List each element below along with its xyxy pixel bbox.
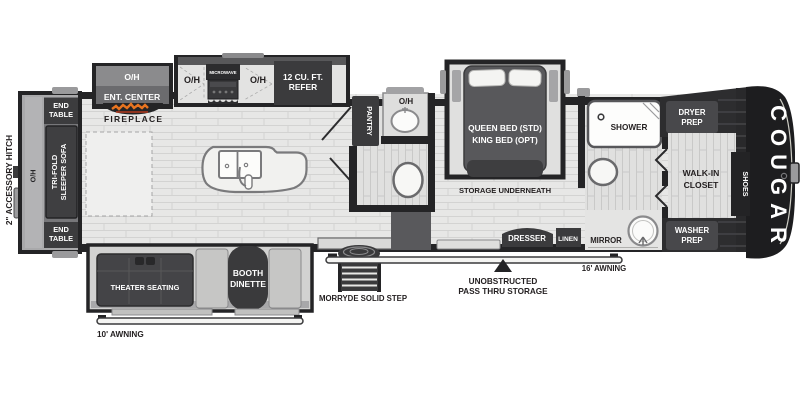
svg-text:QUEEN BED (STD): QUEEN BED (STD) <box>468 123 542 133</box>
svg-text:CLOSET: CLOSET <box>684 180 720 190</box>
svg-text:MICROWAVE: MICROWAVE <box>209 70 236 75</box>
svg-text:THEATER SEATING: THEATER SEATING <box>111 283 180 292</box>
svg-text:BOOTH: BOOTH <box>233 268 263 278</box>
svg-text:O/H: O/H <box>124 72 139 82</box>
svg-text:O/H: O/H <box>29 170 38 183</box>
svg-text:O/H: O/H <box>399 97 413 106</box>
svg-text:END: END <box>53 101 69 110</box>
svg-text:UNOBSTRUCTED: UNOBSTRUCTED <box>469 277 538 286</box>
svg-text:ENT. CENTER: ENT. CENTER <box>104 92 161 102</box>
svg-text:DRESSER: DRESSER <box>508 234 546 243</box>
svg-text:10' AWNING: 10' AWNING <box>97 330 144 339</box>
svg-text:STORAGE UNDERNEATH: STORAGE UNDERNEATH <box>459 186 551 195</box>
svg-text:O/H: O/H <box>250 75 266 85</box>
svg-text:PREP: PREP <box>681 118 702 127</box>
svg-text:16' AWNING: 16' AWNING <box>582 264 626 273</box>
svg-text:WALK-IN: WALK-IN <box>683 168 720 178</box>
svg-text:END: END <box>53 225 69 234</box>
svg-text:TRI-FOLD: TRI-FOLD <box>50 154 59 189</box>
svg-text:DINETTE: DINETTE <box>230 279 266 289</box>
svg-text:O/H: O/H <box>184 75 200 85</box>
svg-text:WASHER: WASHER <box>675 226 710 235</box>
svg-text:SHOWER: SHOWER <box>611 123 648 132</box>
svg-text:REFER: REFER <box>289 82 317 92</box>
svg-text:2" ACCESSORY HITCH: 2" ACCESSORY HITCH <box>4 135 14 225</box>
svg-text:FIREPLACE: FIREPLACE <box>104 114 162 124</box>
svg-text:SLEEPER SOFA: SLEEPER SOFA <box>59 143 68 200</box>
svg-text:LINEN: LINEN <box>558 236 578 243</box>
svg-text:TABLE: TABLE <box>49 234 73 243</box>
svg-text:MORRYDE SOLID STEP: MORRYDE SOLID STEP <box>319 294 407 303</box>
svg-text:MIRROR: MIRROR <box>590 236 622 245</box>
svg-text:DRYER: DRYER <box>678 108 705 117</box>
svg-text:KING BED (OPT): KING BED (OPT) <box>472 135 538 145</box>
svg-text:COUGAR: COUGAR <box>766 105 791 251</box>
svg-text:PREP: PREP <box>681 236 702 245</box>
svg-text:PASS THRU STORAGE: PASS THRU STORAGE <box>458 287 548 296</box>
svg-text:SHOES: SHOES <box>741 171 750 196</box>
svg-text:12 CU. FT.: 12 CU. FT. <box>283 72 323 82</box>
svg-text:PANTRY: PANTRY <box>365 106 374 136</box>
svg-text:TABLE: TABLE <box>49 110 73 119</box>
